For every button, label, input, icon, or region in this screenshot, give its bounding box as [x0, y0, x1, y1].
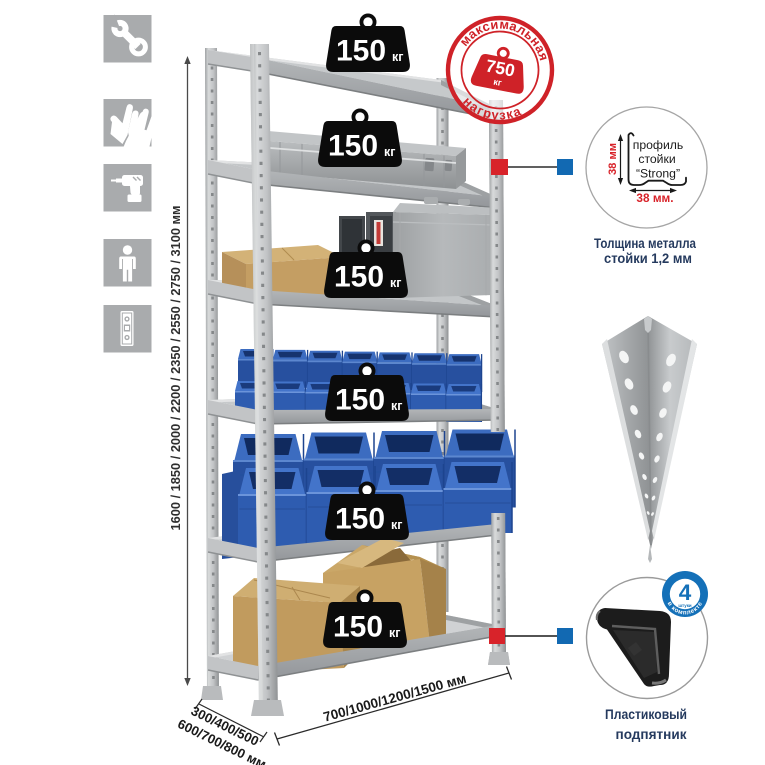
- svg-text:“Strong”: “Strong”: [636, 167, 680, 181]
- svg-text:подпятник: подпятник: [616, 727, 687, 742]
- svg-text:38 мм.: 38 мм.: [636, 191, 673, 205]
- svg-text:профиль: профиль: [633, 138, 683, 152]
- svg-text:Пластиковый: Пластиковый: [605, 707, 687, 722]
- svg-text:штуки: штуки: [678, 603, 692, 608]
- svg-text:4: 4: [679, 580, 692, 605]
- svg-text:Толщина металла: Толщина металла: [594, 236, 696, 251]
- svg-text:стойки: стойки: [638, 152, 675, 166]
- svg-text:38 мм: 38 мм: [607, 143, 619, 175]
- svg-text:1600 / 1850 / 2000 / 2200 / 23: 1600 / 1850 / 2000 / 2200 / 2350 / 2550 …: [168, 206, 183, 531]
- svg-text:стойки 1,2 мм: стойки 1,2 мм: [604, 251, 692, 266]
